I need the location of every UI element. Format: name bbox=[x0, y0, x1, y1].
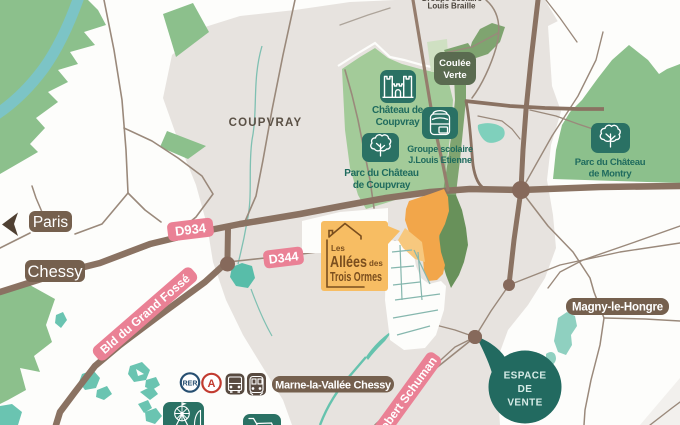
svg-text:Louis Braille: Louis Braille bbox=[427, 2, 476, 11]
svg-text:A: A bbox=[208, 378, 216, 390]
svg-text:ESPACE: ESPACE bbox=[504, 371, 547, 382]
svg-text:Marne-la-Vallée Chessy: Marne-la-Vallée Chessy bbox=[275, 380, 392, 392]
svg-text:Magny-le-Hongre: Magny-le-Hongre bbox=[572, 302, 663, 314]
svg-text:Trois Ormes: Trois Ormes bbox=[330, 269, 382, 284]
svg-text:J.Louis Etienne: J.Louis Etienne bbox=[408, 155, 472, 165]
svg-text:Verte: Verte bbox=[443, 70, 466, 81]
svg-text:de Montry: de Montry bbox=[589, 169, 633, 180]
svg-text:Coupvray: Coupvray bbox=[376, 117, 420, 128]
svg-text:Coulée: Coulée bbox=[439, 58, 471, 69]
svg-text:VENTE: VENTE bbox=[507, 398, 542, 409]
svg-text:Parc du Château: Parc du Château bbox=[344, 168, 419, 179]
svg-text:Paris: Paris bbox=[33, 214, 69, 231]
svg-text:de Coupvray: de Coupvray bbox=[353, 180, 411, 191]
svg-text:RER: RER bbox=[183, 381, 198, 388]
svg-text:Chessy: Chessy bbox=[27, 263, 83, 281]
svg-text:des: des bbox=[369, 259, 383, 268]
svg-text:Groupe scolaire: Groupe scolaire bbox=[421, 0, 482, 3]
svg-text:COUPVRAY: COUPVRAY bbox=[229, 117, 303, 129]
svg-text:Les: Les bbox=[331, 244, 345, 253]
svg-text:DE: DE bbox=[518, 384, 533, 395]
svg-text:Parc du Château: Parc du Château bbox=[575, 157, 646, 168]
svg-text:Groupe scolaire: Groupe scolaire bbox=[407, 144, 473, 154]
svg-text:Château de: Château de bbox=[372, 105, 424, 116]
